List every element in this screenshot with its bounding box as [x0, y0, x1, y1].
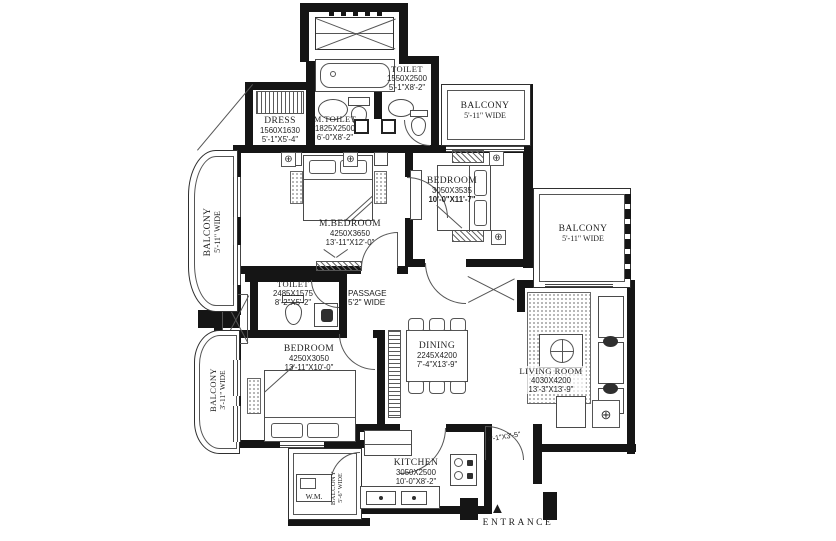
blanket-line — [304, 179, 372, 180]
chair — [408, 318, 424, 331]
hob — [450, 454, 477, 486]
sofa-seat — [598, 296, 624, 338]
entrance-arrow-icon: ▲ — [490, 501, 505, 516]
wall — [250, 274, 258, 338]
plant — [603, 336, 618, 347]
wall-tick — [365, 11, 370, 16]
stool — [556, 396, 586, 428]
door-swing-mark — [336, 249, 348, 258]
chair — [450, 381, 466, 394]
room-label-bedroom-bottom: BEDROOM 4250X3050 13'-11"X10'-0" — [279, 344, 339, 372]
burner — [454, 458, 463, 467]
room-label-balcony-top-right: BALCONY 5'-11" WIDE — [458, 101, 512, 120]
window — [545, 281, 613, 287]
pillow — [271, 423, 303, 438]
wall — [405, 259, 425, 267]
tv-unit — [316, 261, 362, 271]
room-label-bedroom-top-right: BEDROOM 3050X3535 10'-0"X11'-7" — [421, 176, 483, 204]
shower-door — [381, 119, 396, 134]
wall — [300, 3, 309, 62]
room-label-living: LIVING ROOM 4030X4200 13'-3"X13'-9" — [516, 366, 586, 394]
room-label-balcony-right: BALCONY 5'-11" WIDE — [556, 224, 610, 243]
window — [233, 245, 241, 285]
burner — [454, 471, 463, 480]
door-arc — [339, 334, 375, 370]
wall — [627, 280, 635, 454]
window — [233, 360, 241, 396]
window — [233, 177, 241, 217]
sink-drain — [412, 496, 416, 500]
door-arc — [404, 120, 430, 146]
entrance-label: ENTRANCE — [468, 518, 568, 528]
wall — [339, 274, 347, 338]
wc-tank — [410, 110, 428, 117]
room-label-kitchen: KITCHEN 3050X2500 10'-0"X8'-2" — [390, 458, 442, 486]
plant — [603, 383, 618, 394]
washing-machine-inner — [300, 478, 316, 489]
railing-dash — [625, 269, 631, 279]
wall — [245, 82, 311, 90]
blanket-line — [265, 417, 355, 418]
door-swing-mark — [323, 249, 335, 258]
chair — [429, 381, 445, 394]
room-label-passage: PASSAGE 5'2" WIDE — [348, 289, 400, 307]
kitchen-sink-counter — [360, 486, 440, 509]
wall — [543, 492, 557, 520]
wc-tank — [348, 97, 370, 106]
corner-table: ⊕ — [592, 400, 620, 428]
table-symbol-icon: ⊕ — [601, 408, 612, 421]
sideboard — [388, 330, 401, 418]
bedside-mat — [374, 171, 387, 204]
chair — [450, 318, 466, 331]
wall — [399, 3, 408, 62]
door-swing-mark — [468, 278, 515, 302]
railing-dash — [625, 239, 631, 249]
room-label-balcony-bottom-left: BALCONY 3'-11" WIDE — [202, 350, 232, 430]
fan-symbol-icon: ⊕ — [343, 152, 358, 167]
chair — [408, 381, 424, 394]
railing-dash — [625, 224, 631, 234]
burner-knob — [467, 460, 473, 466]
bedside-mat — [247, 378, 261, 414]
room-label-toilet-mid: TOILET 2485X1575 8'-2"X5'-2" — [264, 279, 322, 307]
wall — [466, 259, 533, 267]
pillow — [309, 160, 336, 174]
room-label-m-bedroom: M.BEDROOM 4250X3650 13'-11"X12'-0" — [312, 219, 388, 247]
burner-knob — [467, 473, 473, 479]
door-leaf — [397, 232, 398, 268]
washbasin-pedestal — [321, 309, 333, 322]
room-label-utility-balcony: BALCONY 5'-6" WIDE — [326, 457, 348, 519]
railing-dash — [625, 209, 631, 219]
table-cross — [562, 339, 563, 363]
railing-dash — [625, 194, 631, 204]
wall — [431, 56, 439, 153]
fan-symbol-icon: ⊕ — [281, 152, 296, 167]
room-label-dress: DRESS 1560X1630 5'-1"X5'-4" — [250, 116, 310, 144]
sink-drain — [379, 496, 383, 500]
shaft-line — [316, 33, 393, 34]
fan-symbol-icon: ⊕ — [489, 151, 504, 166]
room-label-toilet-top: TOILET 1550X2500 5'-1"X8'-2" — [384, 64, 430, 92]
bathtub-drain — [330, 71, 336, 77]
room-label-balcony-left: BALCONY 5'-11" WIDE — [195, 187, 229, 277]
fan-symbol-icon: ⊕ — [491, 230, 506, 245]
wall — [460, 498, 478, 520]
door-arc — [425, 263, 466, 304]
center-table — [539, 334, 583, 368]
wall — [540, 444, 636, 452]
window — [233, 406, 241, 442]
wall — [233, 330, 347, 338]
chair — [429, 318, 445, 331]
wardrobe — [256, 91, 304, 114]
pillow — [307, 423, 339, 438]
wall-tick — [329, 11, 334, 16]
wall-tick — [341, 11, 346, 16]
wall — [397, 266, 408, 274]
wall-tick — [353, 11, 358, 16]
room-label-dining: DINING 2245X4200 7'-4"X13'-9" — [409, 341, 465, 369]
wall-tick — [377, 11, 382, 16]
railing-dash — [625, 254, 631, 264]
floor-plan: ⊕ W.M. ▲ ENTRANCE ⊕ ⊕ ⊕ ⊕ DRESS 1560X163… — [0, 0, 836, 541]
wall — [523, 142, 533, 268]
wall — [517, 280, 525, 312]
sofa-seat — [598, 342, 624, 384]
window — [280, 441, 324, 448]
bedside-mat — [290, 171, 303, 204]
door-swing-mark — [468, 276, 515, 300]
room-label-m-toilet: M.TOILET 1825X2500 6'-0"X8'-2" — [310, 114, 360, 142]
wardrobe — [452, 150, 484, 163]
side-table — [374, 152, 388, 166]
bed — [303, 155, 373, 221]
wall — [533, 424, 542, 484]
